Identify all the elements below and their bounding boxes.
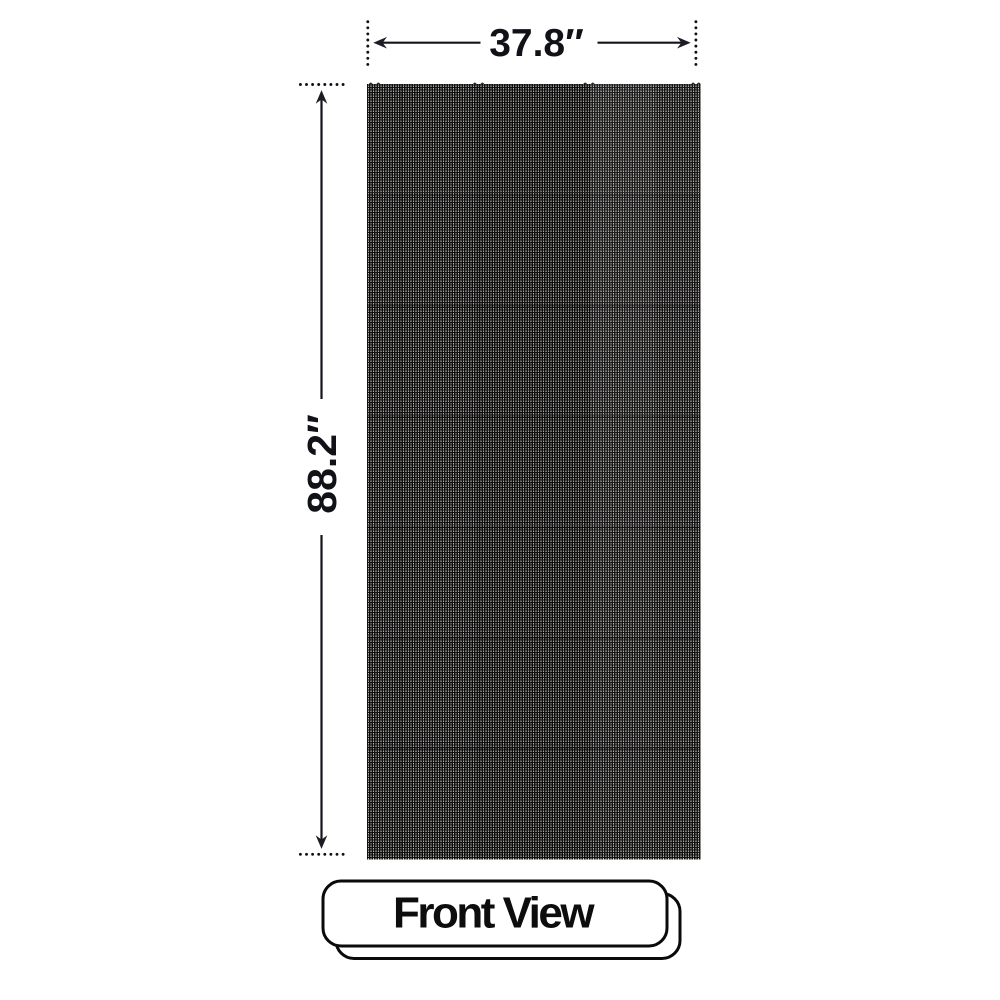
svg-text:37.8″: 37.8″ [489,22,584,65]
svg-text:Front View: Front View [393,889,595,938]
svg-text:88.2″: 88.2″ [299,414,345,513]
